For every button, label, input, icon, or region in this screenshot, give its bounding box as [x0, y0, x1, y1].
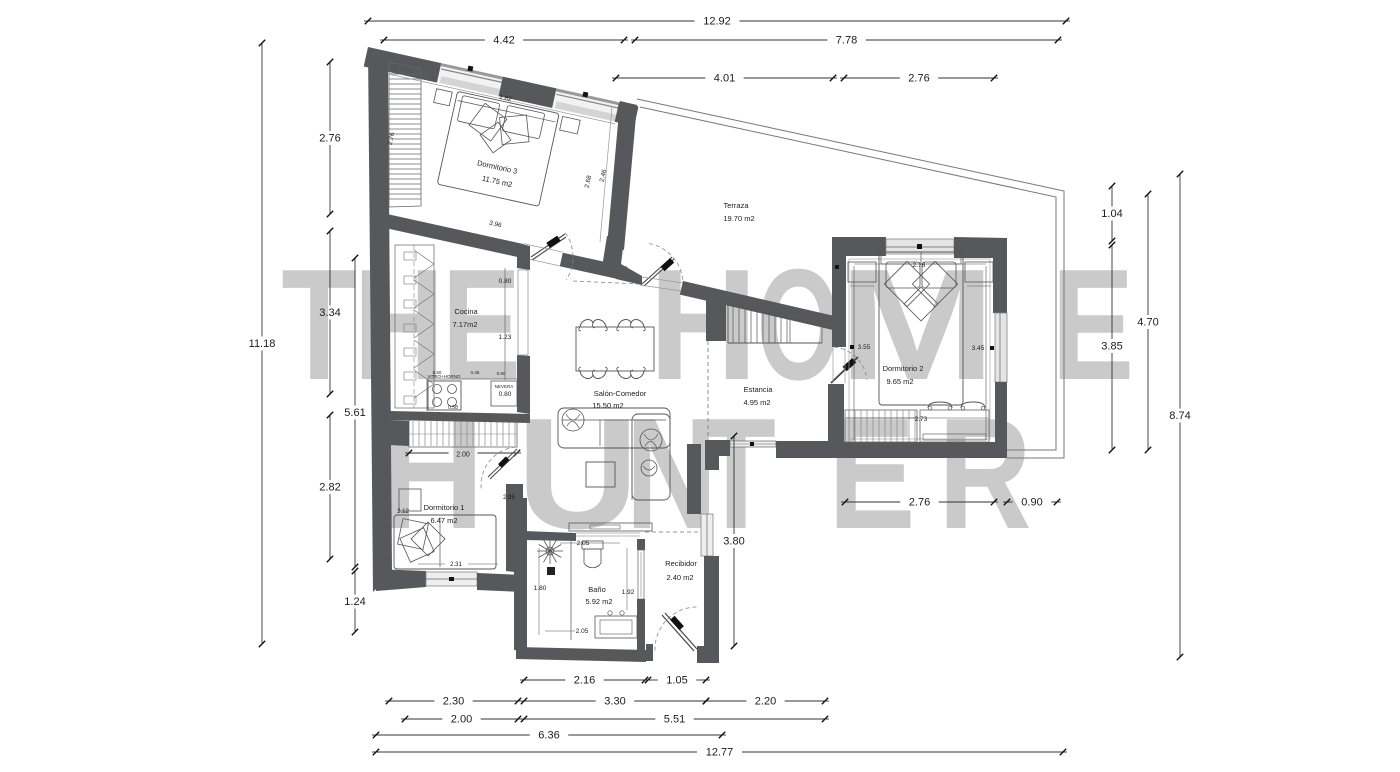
svg-text:3.80: 3.80 [723, 536, 744, 548]
svg-text:5.51: 5.51 [664, 714, 685, 726]
svg-text:15.50 m2: 15.50 m2 [592, 401, 623, 410]
svg-text:4.70: 4.70 [1137, 317, 1158, 329]
svg-text:2.12: 2.12 [397, 509, 409, 515]
svg-text:19.70 m2: 19.70 m2 [723, 214, 754, 223]
svg-text:0.58: 0.58 [448, 405, 458, 411]
svg-text:3.30: 3.30 [604, 696, 625, 708]
svg-text:2.30: 2.30 [443, 696, 464, 708]
svg-text:2.73: 2.73 [915, 416, 928, 423]
svg-text:6.36: 6.36 [538, 730, 559, 742]
svg-text:12.77: 12.77 [706, 747, 734, 759]
svg-text:5.92 m2: 5.92 m2 [585, 597, 612, 606]
svg-text:1.05: 1.05 [666, 675, 687, 687]
svg-text:0.60: 0.60 [433, 370, 442, 375]
svg-text:2.31: 2.31 [450, 562, 462, 568]
svg-text:8.74: 8.74 [1169, 410, 1190, 422]
svg-text:2.00: 2.00 [456, 452, 470, 459]
svg-text:4.01: 4.01 [714, 73, 735, 85]
svg-text:Recibidor: Recibidor [665, 559, 697, 568]
svg-text:3.45: 3.45 [972, 345, 985, 352]
svg-text:Terraza: Terraza [723, 201, 749, 210]
svg-text:1.04: 1.04 [1101, 208, 1122, 220]
svg-text:2.76: 2.76 [913, 262, 926, 269]
svg-text:2.76: 2.76 [908, 73, 929, 85]
svg-text:4.42: 4.42 [493, 35, 514, 47]
svg-text:1.24: 1.24 [344, 596, 365, 608]
svg-text:11.18: 11.18 [249, 338, 276, 350]
svg-text:7.17m2: 7.17m2 [452, 320, 477, 329]
svg-text:0.45: 0.45 [471, 370, 480, 375]
svg-text:5.61: 5.61 [344, 407, 365, 419]
svg-text:0.90: 0.90 [1021, 497, 1042, 509]
svg-text:T: T [281, 238, 357, 414]
svg-text:2.95: 2.95 [503, 495, 515, 501]
svg-text:Estancia: Estancia [744, 385, 774, 394]
svg-text:2.20: 2.20 [755, 696, 776, 708]
svg-text:6.47 m2: 6.47 m2 [430, 516, 457, 525]
svg-text:2.05: 2.05 [576, 628, 589, 635]
svg-text:1.92: 1.92 [622, 589, 635, 596]
svg-text:3.85: 3.85 [1101, 341, 1122, 353]
svg-text:R: R [938, 385, 1032, 562]
svg-text:3.34: 3.34 [319, 307, 340, 319]
svg-text:Dormitorio 2: Dormitorio 2 [883, 364, 924, 373]
svg-text:2.76: 2.76 [319, 133, 340, 145]
svg-text:2.76: 2.76 [909, 497, 930, 509]
svg-text:0.60: 0.60 [497, 371, 506, 376]
svg-text:9.65 m2: 9.65 m2 [886, 377, 913, 386]
svg-text:7.78: 7.78 [836, 35, 857, 47]
svg-text:NEVERA: NEVERA [495, 384, 514, 389]
svg-text:2.00: 2.00 [451, 714, 472, 726]
svg-text:2.16: 2.16 [574, 675, 595, 687]
svg-text:2.82: 2.82 [319, 482, 340, 494]
svg-text:12.92: 12.92 [703, 16, 731, 28]
svg-text:Cocina: Cocina [454, 307, 478, 316]
svg-text:2.40 m2: 2.40 m2 [666, 573, 693, 582]
svg-text:4.95 m2: 4.95 m2 [743, 398, 770, 407]
svg-text:0.80: 0.80 [499, 278, 512, 285]
svg-text:1.23: 1.23 [499, 334, 512, 341]
svg-text:0.80: 0.80 [499, 391, 512, 398]
svg-text:Salón-Comedor: Salón-Comedor [594, 389, 647, 398]
svg-text:1.80: 1.80 [534, 585, 547, 592]
svg-text:2.05: 2.05 [577, 540, 590, 547]
svg-text:3.55: 3.55 [858, 344, 871, 351]
svg-text:Baño: Baño [588, 585, 606, 594]
svg-text:Dormitorio 1: Dormitorio 1 [424, 503, 465, 512]
